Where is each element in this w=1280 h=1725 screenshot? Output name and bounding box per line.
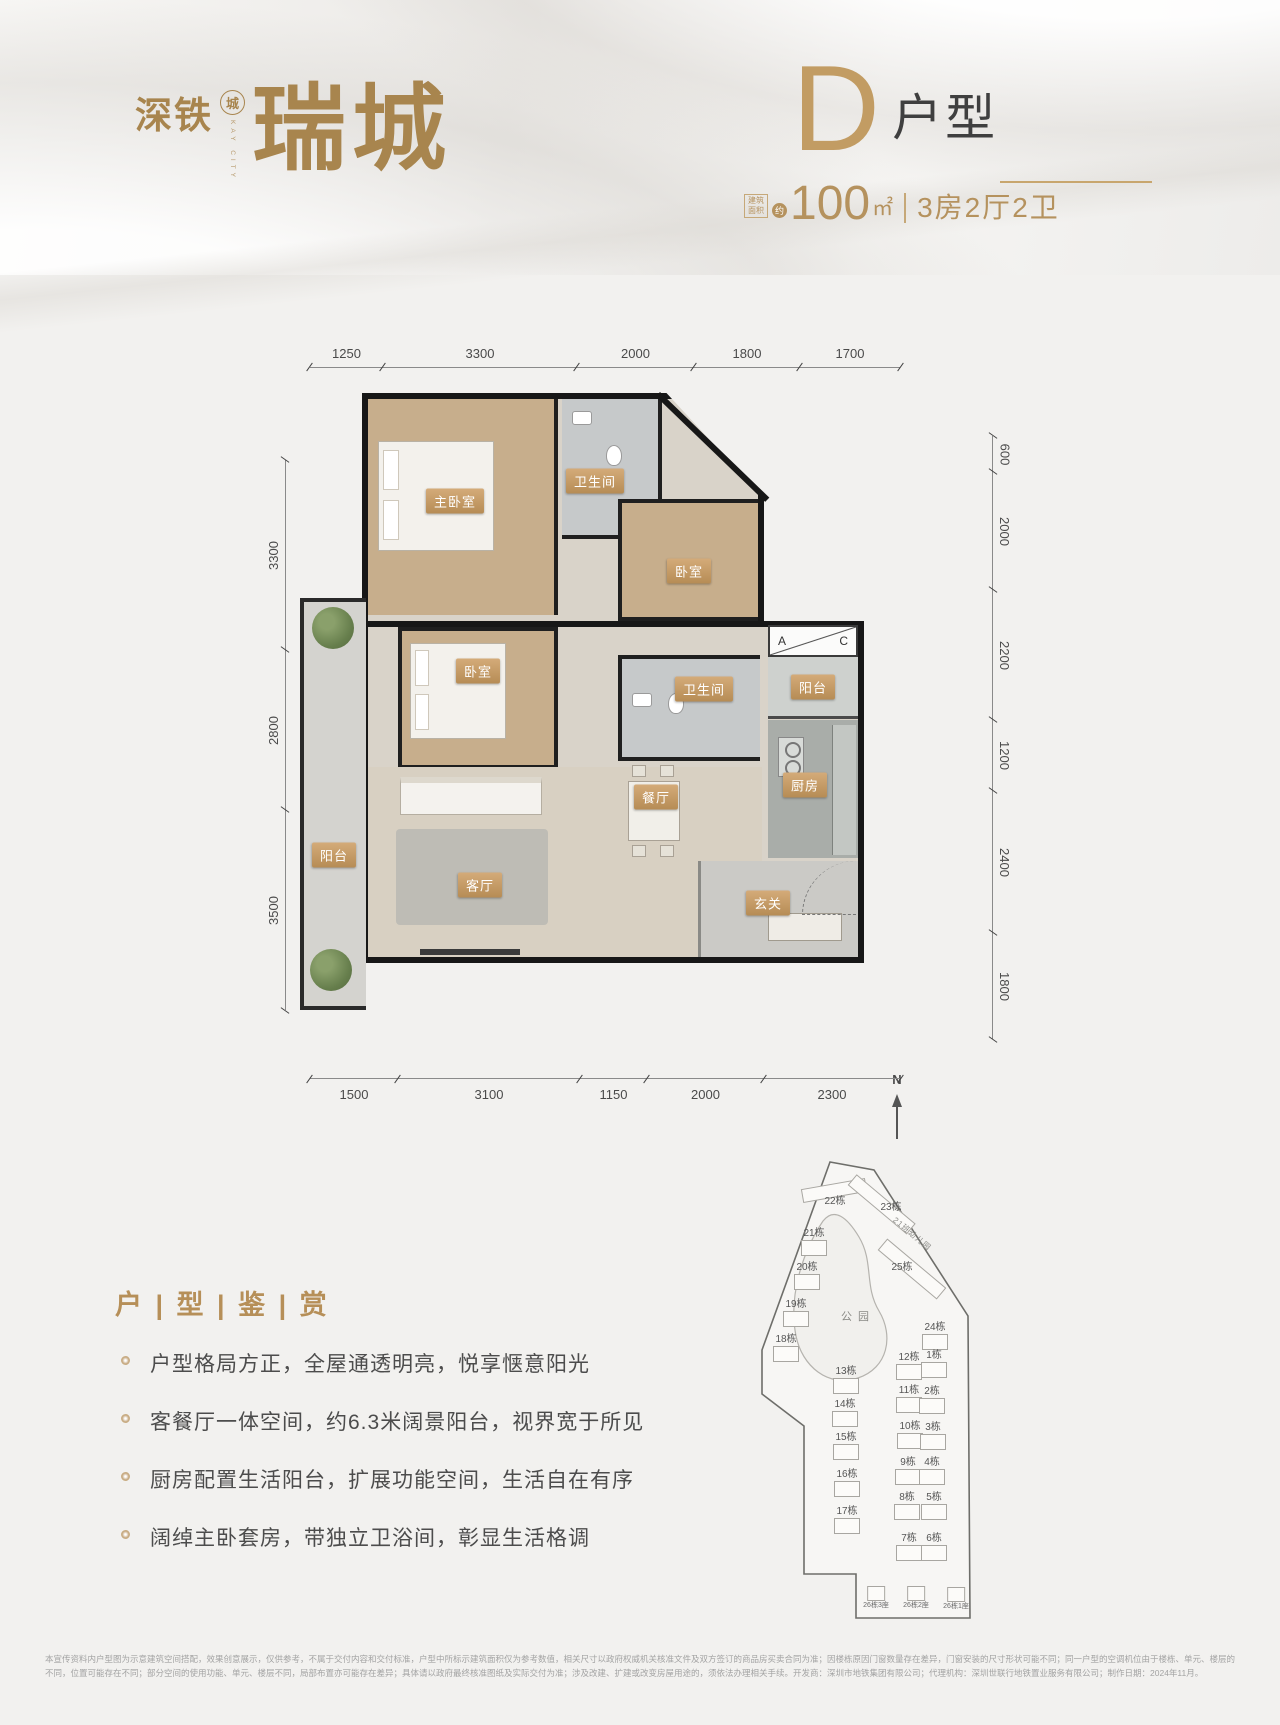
dimensions-top: 1250 3300 2000 1800 1700 (310, 346, 900, 368)
area-unit: ㎡ (872, 192, 893, 222)
room-label-chip: 阳台 (312, 843, 356, 868)
area-approx-badge: 约 (772, 203, 787, 218)
dim-label: 3300 (266, 541, 281, 570)
dim-label: 1800 (733, 346, 762, 361)
room-label-chip: 卧室 (667, 559, 711, 584)
brand-logo: 深铁 城 KAY CITY 瑞城 (135, 80, 452, 181)
dim-label: 3500 (266, 896, 281, 925)
sitemap: N 公园 21班幼儿园 22栋23栋21栋20栋25栋19栋18栋24栋12栋1… (688, 1066, 990, 1646)
bullet-icon (121, 1530, 130, 1539)
building-label: 19栋 (783, 1299, 809, 1327)
brand-prefix: 深铁 (135, 94, 213, 138)
dim-label: 1700 (836, 346, 865, 361)
building-label: 26栋2座 (903, 1586, 929, 1610)
area-value: 100 (790, 184, 870, 225)
features-title: 户 | 型 | 鉴 | 赏 (115, 1283, 644, 1322)
building-label: 8栋 (894, 1492, 920, 1520)
unit-title: D 户型 (792, 52, 998, 164)
building-label: 4栋 (919, 1457, 945, 1485)
feature-item: 户型格局方正，全屋通透明亮，悦享惬意阳光 (115, 1348, 644, 1378)
building-label: 23栋 (880, 1202, 901, 1213)
building-label: 14栋 (832, 1399, 858, 1427)
dim-label: 2300 (818, 1087, 847, 1102)
dim-label: 1150 (600, 1087, 628, 1102)
feature-text: 阔绰主卧套房，带独立卫浴间，彰显生活格调 (150, 1522, 590, 1552)
north-arrow-stem (896, 1107, 898, 1139)
feature-item: 厨房配置生活阳台，扩展功能空间，生活自在有序 (115, 1464, 644, 1494)
area-divider (904, 193, 906, 223)
dimensions-right: 600 2000 2200 1200 2400 1800 (992, 436, 1016, 1039)
brand-seal-column: 城 KAY CITY (220, 90, 245, 181)
dim-label: 1200 (997, 741, 1012, 770)
unit-underline (1000, 181, 1152, 183)
room-label-chip: 厨房 (783, 773, 827, 798)
room-label-chip: 餐厅 (634, 785, 678, 810)
dim-label: 1800 (997, 972, 1012, 1001)
dim-label: 2200 (997, 641, 1012, 670)
building-label: 2栋 (919, 1386, 945, 1414)
dim-label: 2000 (691, 1087, 720, 1102)
room-label-chip: 卧室 (456, 659, 500, 684)
unit-suffix: 户型 (892, 78, 998, 164)
building-label: 24栋 (922, 1322, 948, 1350)
disclaimer-text: 本宣传资料内户型图为示意建筑空间搭配，效果创意展示，仅供参考，不属于交付内容和交… (45, 1652, 1235, 1681)
dim-label: 2400 (997, 848, 1012, 877)
area-prefix-box: 建筑 面积 (744, 194, 768, 218)
feature-text: 户型格局方正，全屋通透明亮，悦享惬意阳光 (150, 1348, 590, 1378)
building-label: 3栋 (920, 1422, 946, 1450)
feature-item: 客餐厅一体空间，约6.3米阔景阳台，视界宽于所见 (115, 1406, 644, 1436)
feature-text: 客餐厅一体空间，约6.3米阔景阳台，视界宽于所见 (150, 1406, 644, 1436)
room-label-chip: 客厅 (458, 873, 502, 898)
room-label-chip: 卫生间 (675, 677, 733, 702)
building-label: 26栋3座 (863, 1586, 889, 1610)
building-label: 1栋 (921, 1350, 947, 1378)
features-section: 户 | 型 | 鉴 | 赏 户型格局方正，全屋通透明亮，悦享惬意阳光 客餐厅一体… (115, 1283, 644, 1580)
floorplan: A C 主卧室卫生间卧室卧室卫生间阳台厨房餐厅客厅玄关阳台 (300, 393, 892, 1013)
floorplan-poster: 深铁 城 KAY CITY 瑞城 D 户型 建筑 面积 约 100 ㎡ 3房2厅… (0, 0, 1280, 1725)
building-label: 18栋 (773, 1334, 799, 1362)
brand-name: 瑞城 (252, 80, 452, 179)
building-label: 15栋 (833, 1432, 859, 1460)
dimensions-bottom: 1500 3100 1150 2000 2300 (310, 1078, 900, 1102)
unit-area-line: 建筑 面积 约 100 ㎡ 3房2厅2卫 (744, 184, 1060, 225)
room-spec: 3房2厅2卫 (917, 194, 1060, 222)
room-label-chip: 玄关 (746, 891, 790, 916)
brand-seal-icon: 城 (220, 90, 245, 115)
dim-label: 2000 (621, 346, 650, 361)
building-label: 26栋1座 (943, 1587, 969, 1611)
building-label: 12栋 (896, 1352, 922, 1380)
building-label: 6栋 (921, 1533, 947, 1561)
building-label: 9栋 (895, 1457, 921, 1485)
bullet-icon (121, 1414, 130, 1423)
room-label-chip: 阳台 (791, 675, 835, 700)
bullet-icon (121, 1472, 130, 1481)
brand-prefix-text: 深铁 (135, 94, 213, 138)
building-label: 5栋 (921, 1492, 947, 1520)
area-prefix-line2: 面积 (748, 206, 764, 215)
dim-label: 3300 (466, 346, 495, 361)
dim-label: 2800 (266, 716, 281, 745)
dim-label: 3100 (475, 1087, 504, 1102)
feature-item: 阔绰主卧套房，带独立卫浴间，彰显生活格调 (115, 1522, 644, 1552)
building-label: 7栋 (896, 1533, 922, 1561)
building-label: 16栋 (834, 1469, 860, 1497)
area-prefix-line1: 建筑 (748, 196, 764, 205)
building-label: 17栋 (834, 1506, 860, 1534)
building-label: 13栋 (833, 1366, 859, 1394)
building-label: 25栋 (891, 1262, 912, 1273)
dim-label: 600 (997, 443, 1012, 465)
dim-label: 1250 (332, 346, 361, 361)
dimensions-left: 3300 2800 3500 (262, 460, 286, 1010)
dim-label: 1500 (340, 1087, 369, 1102)
room-label-chip: 主卧室 (426, 489, 484, 514)
brand-seal-subtext: KAY CITY (229, 120, 236, 181)
building-label: 22栋 (824, 1196, 845, 1207)
building-label: 21栋 (801, 1228, 827, 1256)
dim-label: 2000 (997, 517, 1012, 546)
unit-letter: D (792, 52, 880, 164)
room-label-chip: 卫生间 (566, 469, 624, 494)
room-labels: 主卧室卫生间卧室卧室卫生间阳台厨房餐厅客厅玄关阳台 (300, 393, 892, 1013)
feature-text: 厨房配置生活阳台，扩展功能空间，生活自在有序 (150, 1464, 634, 1494)
building-label: 20栋 (794, 1262, 820, 1290)
bullet-icon (121, 1356, 130, 1365)
park-label: 公园 (841, 1308, 875, 1324)
